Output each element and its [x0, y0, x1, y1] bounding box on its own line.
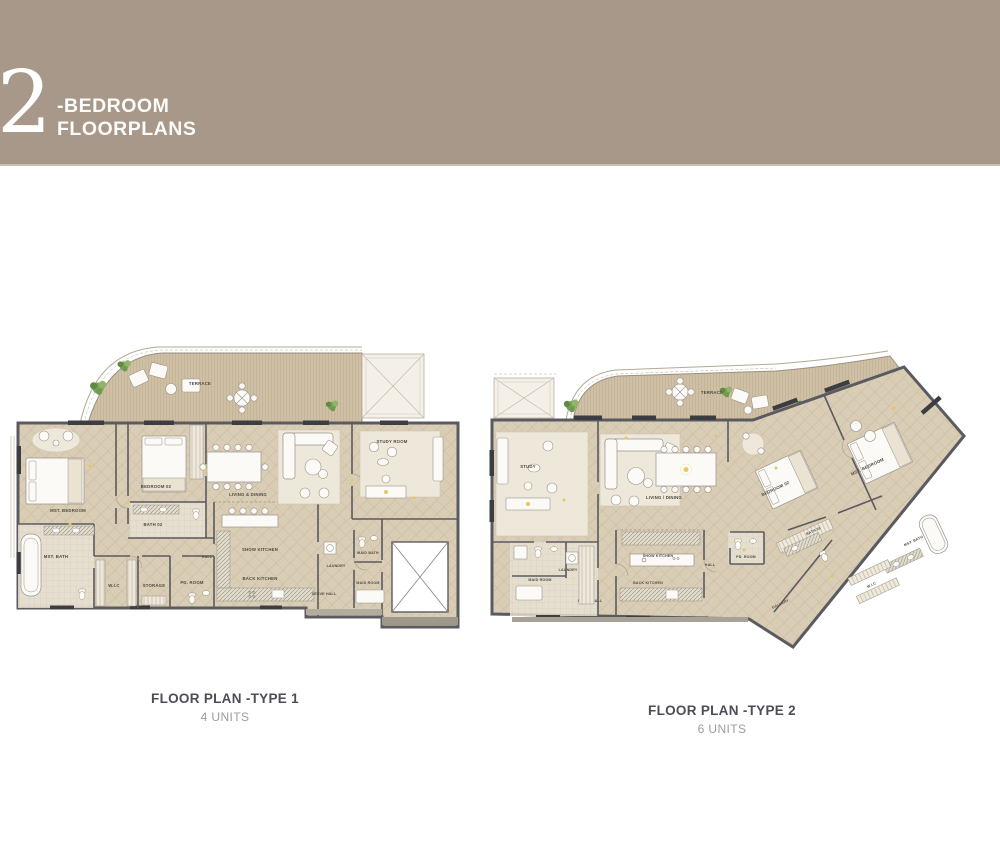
header-title: -BEDROOM FLOORPLANS [57, 95, 196, 141]
room-label-bedroom02: BEDROOM 02 [141, 484, 172, 489]
room-label-laundry: LAUNDRY [559, 568, 578, 572]
brochure-page: 2 -BEDROOM FLOORPLANS [0, 0, 1000, 850]
caption-type1-title: FLOOR PLAN -TYPE 1 [75, 691, 375, 706]
room-label-pd-room: PD. ROOM [736, 555, 756, 559]
room-label-mst-bath: MST. BATH [44, 554, 68, 559]
room-label-maid-bath: MAID BATH [357, 551, 379, 555]
room-label-terrace: TERRACE [701, 390, 723, 395]
floorplan-type2: TERRACE [476, 350, 968, 658]
room-label-serve-hall: SERVE HALL [312, 592, 337, 596]
room-label-hall: HALL [202, 555, 213, 559]
caption-type1-units: 4 UNITS [75, 710, 375, 724]
room-label-maid-room: MAID ROOM [528, 578, 551, 582]
room-label-pd-room: PD. ROOM [180, 580, 204, 585]
study-room: STUDY ROOM [360, 431, 443, 498]
master-bedroom: MST. BEDROOM [26, 428, 86, 513]
caption-type1: FLOOR PLAN -TYPE 1 4 UNITS [75, 691, 375, 724]
room-label-show-kitchen: SHOW KITCHEN [643, 554, 674, 558]
dining-table [207, 452, 261, 482]
room-label-bath02: BATH 02 [144, 522, 163, 527]
hatched-balcony-type2 [494, 378, 554, 418]
room-label-study: STUDY ROOM [376, 439, 407, 444]
room-label-mst-bath: MST. BATH [903, 535, 924, 547]
room-label-wic: W.I.C [108, 583, 120, 588]
room-label-living: LIVING & DINING [229, 492, 267, 497]
caption-type2: FLOOR PLAN -TYPE 2 6 UNITS [572, 703, 872, 736]
room-label-laundry: LAUNDRY [327, 564, 346, 568]
room-label-terrace: TERRACE [189, 381, 211, 386]
closet [190, 425, 203, 479]
room-label-living: LIVING / DINING [646, 495, 682, 500]
room-label-hall: HALL [705, 563, 716, 567]
room-label-storage: STORAGE [143, 583, 166, 588]
study: STUDY [496, 432, 588, 536]
bottom-band [512, 617, 748, 622]
header-title-line1: -BEDROOM [57, 95, 196, 118]
room-label-show-kitchen: SHOW KITCHEN [242, 547, 278, 552]
floorplan-type1: TERRACE [10, 346, 462, 642]
room-label-study: STUDY [520, 464, 536, 469]
room-label-back-kitchen: BACK KITCHEN [242, 576, 277, 581]
caption-type2-title: FLOOR PLAN -TYPE 2 [572, 703, 872, 718]
caption-type2-units: 6 UNITS [572, 722, 872, 736]
header-number: 2 [0, 60, 52, 146]
room-label-back-kitchen: BACK KITCHEN [633, 581, 663, 585]
kitchen-island [222, 515, 278, 527]
header-title-line2: FLOORPLANS [57, 118, 196, 141]
terrace-type1: TERRACE [88, 353, 362, 423]
room-label-maid-room: MAID ROOM [356, 581, 379, 585]
hatched-balcony-type1 [362, 354, 424, 418]
header-band: 2 -BEDROOM FLOORPLANS [0, 0, 1000, 166]
room-label-mst-bedroom: MST. BEDROOM [50, 508, 86, 513]
